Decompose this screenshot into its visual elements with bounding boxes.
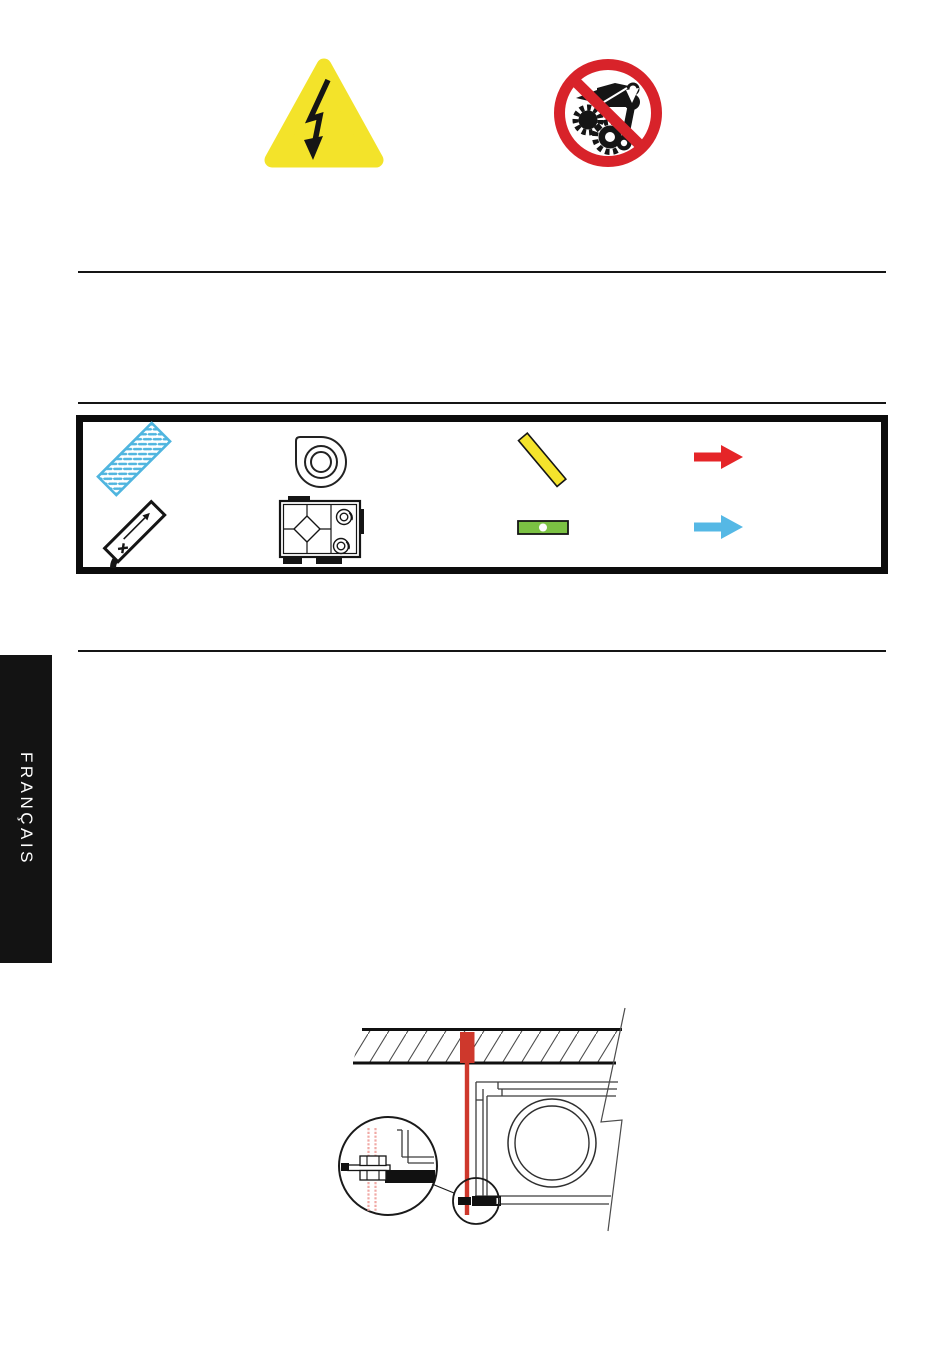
- shut-off-damper-icon: [512, 430, 572, 490]
- fan-icon: [286, 432, 352, 492]
- duct-spigot-circle-inner: [515, 1106, 589, 1180]
- divider-line: [78, 650, 886, 652]
- extract-air-arrow-icon: [694, 444, 744, 470]
- gear-body: [579, 111, 598, 130]
- leader-line: [432, 1184, 454, 1193]
- electric-heater-icon: [100, 498, 170, 570]
- divider-line: [78, 402, 886, 404]
- manual-page: FRANÇAIS: [0, 0, 950, 1348]
- gear-hub: [605, 132, 615, 142]
- wrench-ring-hole: [621, 140, 627, 146]
- internal-fan-hub: [337, 542, 345, 550]
- mounting-nut: [458, 1197, 471, 1205]
- arrow-shape: [694, 515, 743, 539]
- heat-recovery-unit-icon: [278, 496, 364, 564]
- filter-hatching: [98, 423, 170, 495]
- high-voltage-warning-icon: [263, 55, 385, 170]
- spirit-level-icon: [517, 520, 569, 535]
- ceiling-slab-hatching: [353, 1031, 622, 1062]
- ceiling-anchor-block: [460, 1032, 475, 1063]
- warning-triangle-body: [272, 66, 376, 160]
- threaded-suspension-rod: [465, 1063, 469, 1215]
- internal-fan-hub: [340, 513, 348, 521]
- duct-spigot-circle: [508, 1099, 596, 1187]
- divider-line: [78, 271, 886, 273]
- air-filter-icon: [98, 423, 170, 495]
- ceiling-mounting-drawing: [330, 1003, 660, 1245]
- damper-strip-detail: [385, 1170, 435, 1183]
- heater-body: [105, 502, 165, 562]
- supply-air-arrow-icon: [694, 514, 744, 540]
- level-bubble: [539, 524, 547, 532]
- arrow-shape: [694, 445, 743, 469]
- hex-nut-lower: [360, 1171, 386, 1181]
- language-tab-label: FRANÇAIS: [16, 752, 36, 866]
- hex-nut-upper: [360, 1156, 386, 1166]
- language-tab: FRANÇAIS: [0, 655, 52, 963]
- damper-blade: [519, 433, 566, 486]
- bolt-end: [341, 1163, 349, 1171]
- legend-symbols-box: [76, 415, 888, 574]
- no-repair-prohibition-icon: [552, 57, 664, 169]
- fan-scroll: [296, 437, 346, 487]
